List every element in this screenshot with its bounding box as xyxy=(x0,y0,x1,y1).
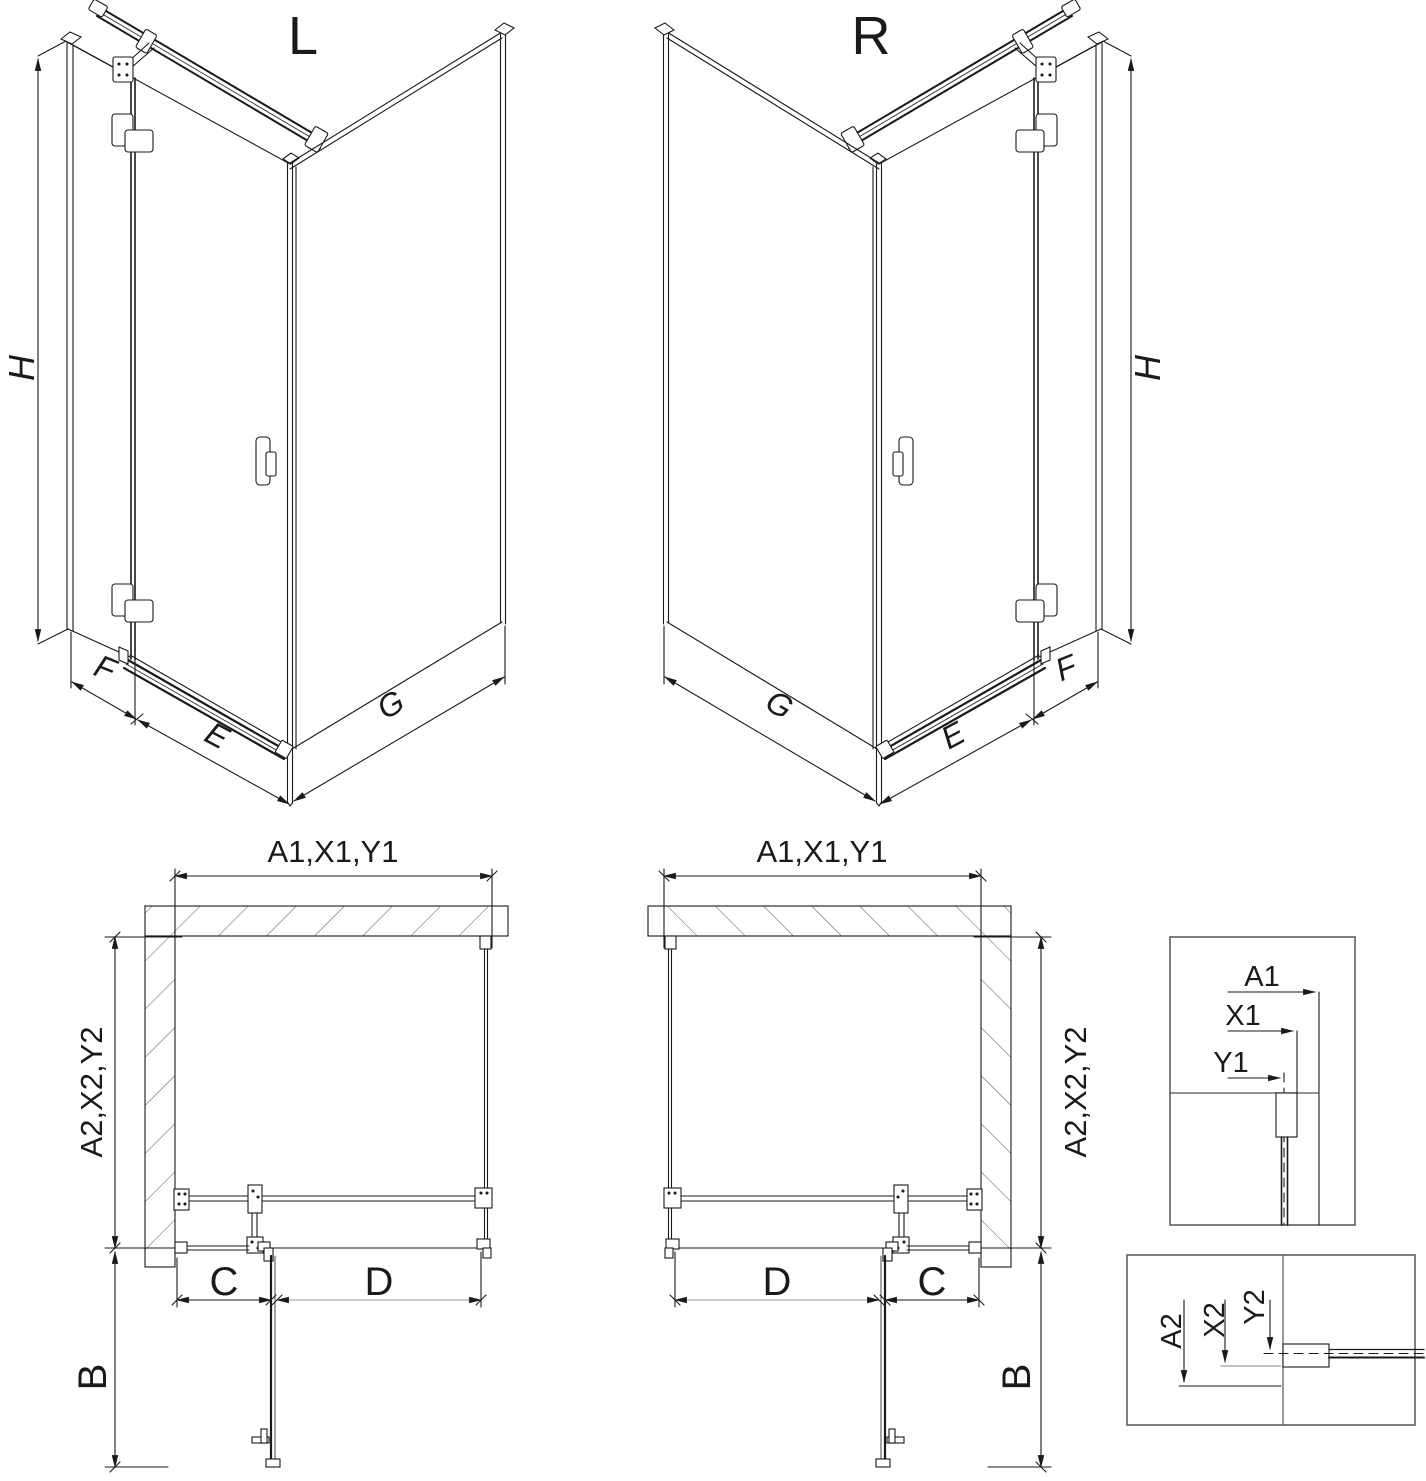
variant-label-left: L xyxy=(288,6,318,66)
plan-width-label-right: A1,X1,Y1 xyxy=(757,834,888,869)
detail-x1-label: X1 xyxy=(1225,1000,1260,1032)
detail-a1-label: A1 xyxy=(1244,961,1279,993)
return-panel-label-left: G xyxy=(371,683,411,727)
plan-view-right xyxy=(648,869,1051,1472)
shower-enclosure-dimension-diagram: A1 X1 Y1 A2 X2 Y2 L H F E G R H F E G A1… xyxy=(0,0,1426,1476)
plan-d-label-right: D xyxy=(763,1260,792,1304)
side-panel-label-left: F xyxy=(89,647,123,689)
side-panel-label-right: F xyxy=(1050,647,1084,689)
detail-y2-label: Y2 xyxy=(1239,1289,1271,1324)
plan-c-label-right: C xyxy=(918,1260,947,1304)
door-label-right: E xyxy=(935,714,971,756)
detail-width-inset: A1 X1 Y1 xyxy=(1170,937,1355,1225)
height-label-left: H xyxy=(1,354,42,381)
detail-x2-label: X2 xyxy=(1199,1302,1231,1337)
iso-view-left xyxy=(38,0,514,806)
detail-depth-inset: A2 X2 Y2 xyxy=(1127,1255,1424,1425)
height-label-right: H xyxy=(1127,354,1168,381)
technical-drawing-canvas: A1 X1 Y1 A2 X2 Y2 L H F E G R H F E G A1… xyxy=(0,0,1426,1476)
door-label-left: E xyxy=(199,714,235,756)
detail-a2-label: A2 xyxy=(1156,1313,1188,1348)
return-panel-label-right: G xyxy=(760,683,800,727)
detail-y1-label: Y1 xyxy=(1213,1047,1248,1079)
plan-d-label-left: D xyxy=(365,1260,394,1304)
plan-view-left xyxy=(105,869,508,1472)
plan-c-label-left: C xyxy=(210,1260,239,1304)
plan-depth-label-left: A2,X2,Y2 xyxy=(74,1027,109,1158)
plan-b-label-right: B xyxy=(995,1364,1039,1391)
iso-view-right xyxy=(655,0,1131,806)
plan-width-label-left: A1,X1,Y1 xyxy=(268,834,399,869)
plan-depth-label-right: A2,X2,Y2 xyxy=(1058,1027,1093,1158)
plan-b-label-left: B xyxy=(71,1364,115,1391)
variant-label-right: R xyxy=(852,6,891,66)
